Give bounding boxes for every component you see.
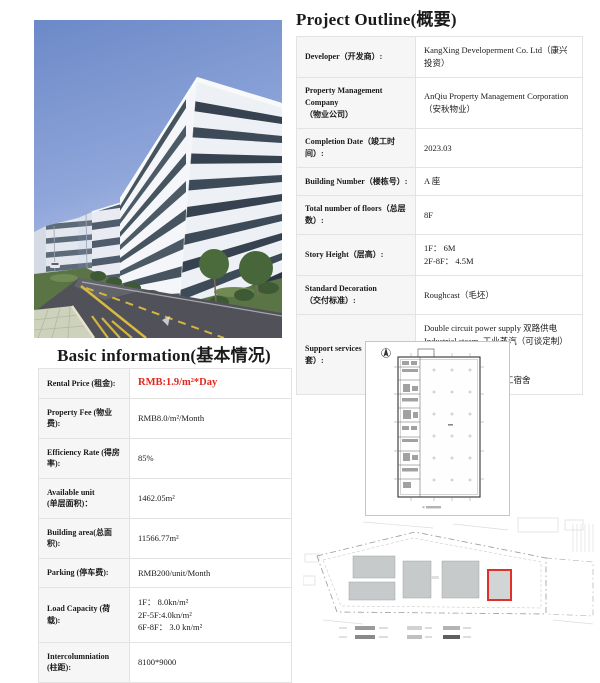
table-row: Developer（开发商）:KangXing Developerment Co… <box>297 37 582 78</box>
row-value: 1F： 8.0kn/m²2F-5F:4.0kn/m²6F-8F： 3.0 kn/… <box>130 588 291 642</box>
site-plan-drawing <box>303 516 600 660</box>
row-label: Property Fee (物业费): <box>39 399 130 438</box>
table-row: Story Height（层高）:1F： 6M2F-8F： 4.5M <box>297 235 582 276</box>
row-value: 85% <box>130 439 291 478</box>
row-label: Building Number（楼栋号）: <box>297 168 416 195</box>
project-outline-title: Project Outline(概要) <box>296 5 457 30</box>
floor-plan-drawing <box>365 341 510 516</box>
plan-outline <box>398 357 480 497</box>
row-label: Available unit(单层面积)： <box>39 479 130 518</box>
row-value: 1462.05m² <box>130 479 291 518</box>
row-label: Property Management Company（物业公司） <box>297 78 416 128</box>
row-value: 2023.03 <box>416 129 582 167</box>
row-value: 1F： 6M2F-8F： 4.5M <box>416 235 582 275</box>
table-row: Efficiency Rate (得房率):85% <box>39 439 291 479</box>
table-row: Building area(总面积):11566.77m² <box>39 519 291 559</box>
site-legend <box>339 626 471 639</box>
row-value: 8F <box>416 196 582 234</box>
table-row: Total number of floors（总层数）:8F <box>297 196 582 235</box>
row-label: Parking (停车费): <box>39 559 130 588</box>
row-label: Efficiency Rate (得房率): <box>39 439 130 478</box>
building-photo <box>34 20 282 338</box>
row-value: 11566.77m² <box>130 519 291 558</box>
table-row: Intercolumniation(柱距):8100*9000 <box>39 643 291 682</box>
table-row: Property Management Company（物业公司）AnQiu P… <box>297 78 582 129</box>
table-row: Load Capacity (荷载):1F： 8.0kn/m²2F-5F:4.0… <box>39 588 291 643</box>
row-value: RMB8.0/m²/Month <box>130 399 291 438</box>
table-row: Available unit(单层面积)：1462.05m² <box>39 479 291 519</box>
basic-information-table: Rental Price (租金):RMB:1.9/m²*DayProperty… <box>38 368 292 683</box>
table-row: Standard Decoration（交付标准）:Roughcast（毛坯） <box>297 276 582 315</box>
row-value: Roughcast（毛坯） <box>416 276 582 314</box>
row-label: Load Capacity (荷载): <box>39 588 130 642</box>
north-arrow-icon <box>382 348 391 358</box>
row-value: 8100*9000 <box>130 643 291 682</box>
row-label: Rental Price (租金): <box>39 369 130 398</box>
site-buildings <box>349 556 479 600</box>
row-label: Total number of floors（总层数）: <box>297 196 416 234</box>
row-label: Completion Date（竣工时间）: <box>297 129 416 167</box>
table-row: Building Number（楼栋号）:A 座 <box>297 168 582 196</box>
highlighted-building-outline <box>488 570 511 600</box>
row-label: Story Height（层高）: <box>297 235 416 275</box>
row-value: RMB200/unit/Month <box>130 559 291 588</box>
plan-caption-smudge <box>423 506 442 508</box>
table-row: Property Fee (物业费):RMB8.0/m²/Month <box>39 399 291 439</box>
table-row: Rental Price (租金):RMB:1.9/m²*Day <box>39 369 291 399</box>
row-value: AnQiu Property Management Corporation（安秋… <box>416 78 582 128</box>
row-label: Intercolumniation(柱距): <box>39 643 130 682</box>
row-label: Developer（开发商）: <box>297 37 416 77</box>
row-label: Building area(总面积): <box>39 519 130 558</box>
row-value: RMB:1.9/m²*Day <box>130 369 291 398</box>
row-value: A 座 <box>416 168 582 195</box>
table-row: Parking (停车费):RMB200/unit/Month <box>39 559 291 589</box>
building-photo-graphic <box>34 20 282 338</box>
row-value: KangXing Developerment Co. Ltd（康兴投资） <box>416 37 582 77</box>
basic-information-title: Basic information(基本情况) <box>38 341 290 366</box>
table-row: Completion Date（竣工时间）:2023.03 <box>297 129 582 168</box>
row-label: Standard Decoration（交付标准）: <box>297 276 416 314</box>
